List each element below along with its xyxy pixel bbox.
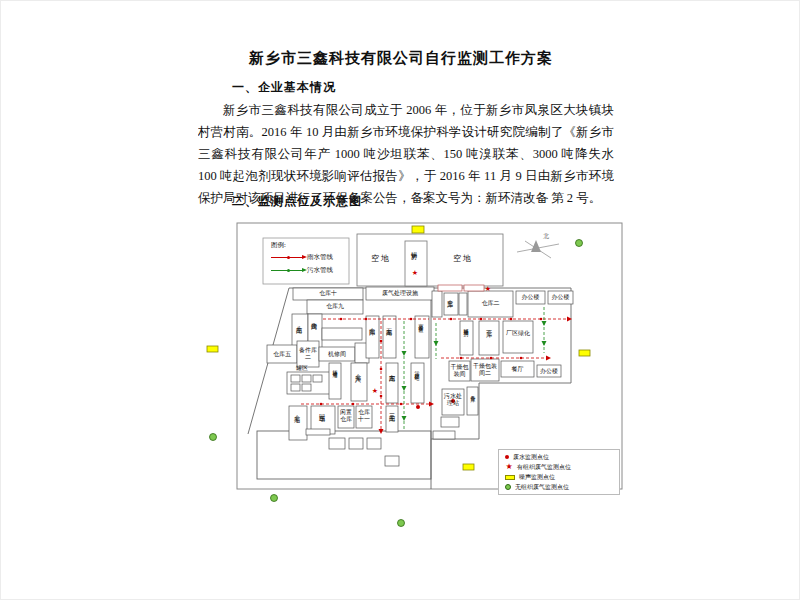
pipeline-dot xyxy=(380,368,383,371)
building-box xyxy=(503,321,533,353)
pipeline-dot xyxy=(352,403,355,406)
area-label: 三车间 xyxy=(389,409,395,412)
legend-row-rain: 雨水管线 xyxy=(264,251,348,264)
area-label: 餐厅 xyxy=(501,366,534,373)
tank xyxy=(302,384,311,391)
area-label: 罐区 xyxy=(288,365,316,372)
area-label: 室外设备区 xyxy=(418,319,423,324)
pipeline-arrow xyxy=(402,386,407,391)
pipeline-dot xyxy=(460,357,463,360)
site-plan-svg: ★ ★ ★ 北 xyxy=(1,1,800,600)
outlet-label-box xyxy=(464,285,484,291)
area-label: 五车间 xyxy=(386,323,392,326)
noise-monitor-point xyxy=(207,346,218,352)
wastewater-marker-icon xyxy=(505,455,509,459)
pipeline-arrow xyxy=(402,416,407,421)
building-box xyxy=(329,438,345,449)
pipeline-arrow xyxy=(434,341,439,346)
building-box xyxy=(385,456,399,466)
legend-row-wastewater: 废水监测点位 xyxy=(505,452,619,462)
area-label: 办公楼 xyxy=(516,294,545,301)
area-label: 仓库三 xyxy=(447,295,453,298)
pipeline-dot xyxy=(480,318,483,321)
building-box xyxy=(433,431,455,439)
pipeline-arrow xyxy=(542,321,547,326)
pipeline-dot xyxy=(380,340,383,343)
fugitive-gas-legend-label: 无组织废气监测点位 xyxy=(515,483,569,492)
legend-title: 图例: xyxy=(271,241,348,250)
area-label: 仓库十 xyxy=(293,290,363,297)
noise-legend-label: 噪声监测点位 xyxy=(519,473,555,482)
area-label: 接合间 xyxy=(311,317,317,320)
fugitive-gas-monitor-point xyxy=(398,520,405,527)
area-label: 辅助用房 xyxy=(463,324,468,328)
pipeline-arrow xyxy=(542,341,547,346)
legend-rain-label: 雨水管线 xyxy=(307,253,333,262)
organized-gas-monitor-point: ★ xyxy=(485,285,491,293)
noise-marker-icon xyxy=(505,475,515,480)
tank xyxy=(313,375,322,382)
legend-sewage-label: 污水管线 xyxy=(307,266,333,275)
diagram-legend: 图例: 雨水管线 污水管线 xyxy=(264,239,348,283)
fugitive-gas-monitor-point xyxy=(210,434,217,441)
area-label-boiler-house: 锅炉房 xyxy=(411,246,417,249)
noise-monitor-point xyxy=(412,226,424,233)
tank xyxy=(291,384,300,391)
outlet-label-box xyxy=(438,285,462,291)
area-label-empty-land: 空地 xyxy=(427,254,499,263)
pipeline-dot xyxy=(450,318,453,321)
area-label: 六车间 xyxy=(389,369,395,372)
organized-gas-monitor-point: ★ xyxy=(412,269,418,277)
legend-row-noise: 噪声监测点位 xyxy=(505,472,619,482)
area-label: 干燥包装间 xyxy=(449,364,470,378)
noise-monitor-point xyxy=(579,350,590,356)
building-box xyxy=(306,429,330,435)
area-label: 仓库五 xyxy=(267,351,297,358)
fugitive-gas-monitor-point xyxy=(576,240,583,247)
rain-pipeline-icon xyxy=(271,257,303,258)
wastewater-legend-label: 废水监测点位 xyxy=(513,453,549,462)
pipeline-arrow xyxy=(379,429,384,434)
area-label: 八车间 xyxy=(296,321,302,324)
area-label: 机修间 xyxy=(319,351,355,358)
pipeline-dot xyxy=(510,318,513,321)
building-box xyxy=(367,438,381,449)
monitoring-legend: 废水监测点位 ★ 有组织废气监测点位 噪声监测点位 无组织废气监测点位 xyxy=(498,449,620,495)
area-label: 备件库 xyxy=(470,391,475,394)
area-label: 污水处理站 xyxy=(414,367,419,372)
tank xyxy=(291,375,300,382)
area-label: 回车场 xyxy=(319,409,325,412)
pipeline-dot xyxy=(540,318,543,321)
organized-gas-marker-icon: ★ xyxy=(505,464,513,470)
pipeline-arrow xyxy=(429,402,434,407)
fugitive-gas-marker-icon xyxy=(505,484,511,490)
area-label-gas-treatment: 废气处理设施 xyxy=(366,290,434,297)
pipeline-dot xyxy=(340,318,343,321)
document-page: 新乡市三鑫科技有限公司自行监测工作方案 一、企业基本情况 新乡市三鑫科技有限公司… xyxy=(0,0,800,600)
area-label: 仓库二 xyxy=(468,300,513,307)
pipeline-dot xyxy=(520,357,523,360)
area-label: 仓库九 xyxy=(307,303,363,310)
pipeline-dot xyxy=(365,318,368,321)
pipeline-arrow xyxy=(402,351,407,356)
legend-row-organized-gas: ★ 有组织废气监测点位 xyxy=(505,462,619,472)
area-label: 办公楼 xyxy=(548,294,573,301)
legend-row-sewage: 污水管线 xyxy=(264,264,348,277)
area-label: 厂区绿化 xyxy=(504,330,532,337)
area-label: 仓库七 xyxy=(294,410,300,413)
building-box xyxy=(459,293,467,315)
pipeline-dot xyxy=(400,403,403,406)
compass-north-label: 北 xyxy=(543,232,549,240)
area-label: 仓库六 xyxy=(355,369,361,372)
area-label: 运输通道 xyxy=(332,365,337,369)
pipeline-arrow xyxy=(546,356,551,361)
fugitive-gas-monitor-point xyxy=(271,495,278,502)
building-box xyxy=(349,438,363,449)
organized-gas-monitor-point: ★ xyxy=(372,387,378,395)
area-label: 污水处理站 xyxy=(444,393,462,407)
area-label: 闲置仓库 xyxy=(339,409,353,423)
area-label: 仓库十一 xyxy=(357,409,371,423)
area-label-empty-land: 空地 xyxy=(357,254,405,263)
north-compass-icon: 北 xyxy=(517,232,559,258)
area-label: 仓库一 xyxy=(486,325,492,328)
noise-monitor-point xyxy=(463,464,474,470)
organized-gas-legend-label: 有组织废气监测点位 xyxy=(517,463,571,472)
area-label: 备件库二 xyxy=(299,347,317,361)
pipeline-dot xyxy=(410,318,413,321)
area-label: 办公楼 xyxy=(537,368,561,375)
sewage-pipeline-icon xyxy=(271,270,303,271)
area-label: 干燥包装间二 xyxy=(472,363,498,377)
tank xyxy=(302,375,311,382)
legend-row-fugitive-gas: 无组织废气监测点位 xyxy=(505,482,619,492)
building-box xyxy=(441,417,459,427)
wastewater-monitor-point xyxy=(416,405,420,409)
pipeline-dot xyxy=(320,403,323,406)
pipeline-dot xyxy=(380,395,383,398)
building-box xyxy=(322,328,362,340)
pipeline-dot xyxy=(490,357,493,360)
area-label: 仓库四 xyxy=(369,323,375,326)
